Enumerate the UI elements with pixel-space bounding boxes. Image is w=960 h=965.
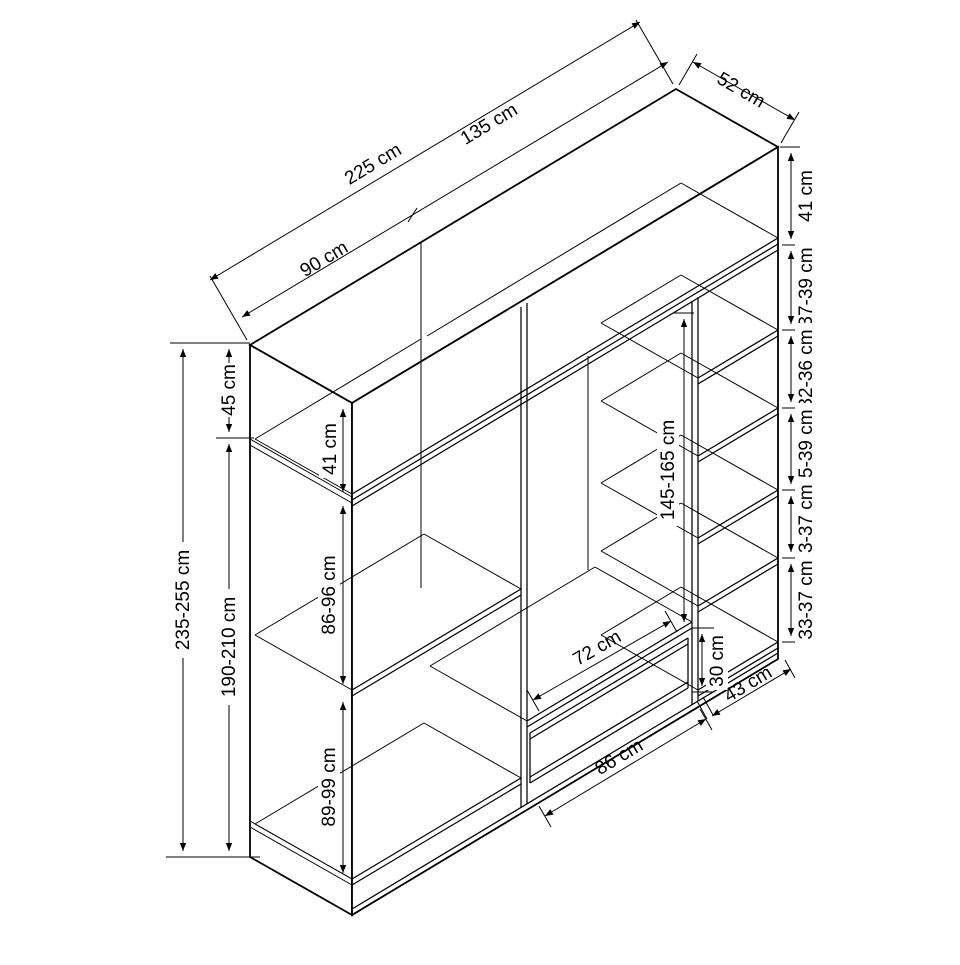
dim-label-drawer-height: 30 cm — [707, 635, 728, 687]
dim-label-depth: 52 cm — [713, 68, 768, 112]
diagram-canvas: 225 cm 135 cm 90 cm 52 cm 235-255 cm 45 … — [0, 0, 960, 960]
dim-label-left-top-inner: 41 cm — [320, 423, 341, 475]
dim-label-right-width: 135 cm — [457, 99, 521, 149]
dim-label-hanging-height: 145-165 cm — [658, 420, 679, 520]
dim-label-right-gap-3: 35-39 cm — [796, 409, 817, 488]
dim-label-right-top-shelf: 41 cm — [796, 170, 817, 222]
dim-label-total-height: 235-255 cm — [173, 550, 194, 650]
wardrobe-dimension-diagram: 225 cm 135 cm 90 cm 52 cm 235-255 cm 45 … — [0, 0, 960, 960]
dim-label-left-middle: 86-96 cm — [319, 555, 340, 634]
dim-label-left-bottom: 89-99 cm — [319, 747, 340, 826]
dim-label-top-cabinet-height: 45 cm — [219, 364, 240, 416]
dim-label-left-width: 90 cm — [297, 237, 352, 282]
dim-label-right-gap-5: 33-37 cm — [796, 560, 817, 639]
dim-label-right-gap-1: 37-39 cm — [796, 247, 817, 326]
dim-label-right-gap-2: 32-36 cm — [796, 329, 817, 408]
dim-label-right-gap-4: 33-37 cm — [796, 484, 817, 563]
dim-label-lower-height: 190-210 cm — [219, 597, 240, 697]
